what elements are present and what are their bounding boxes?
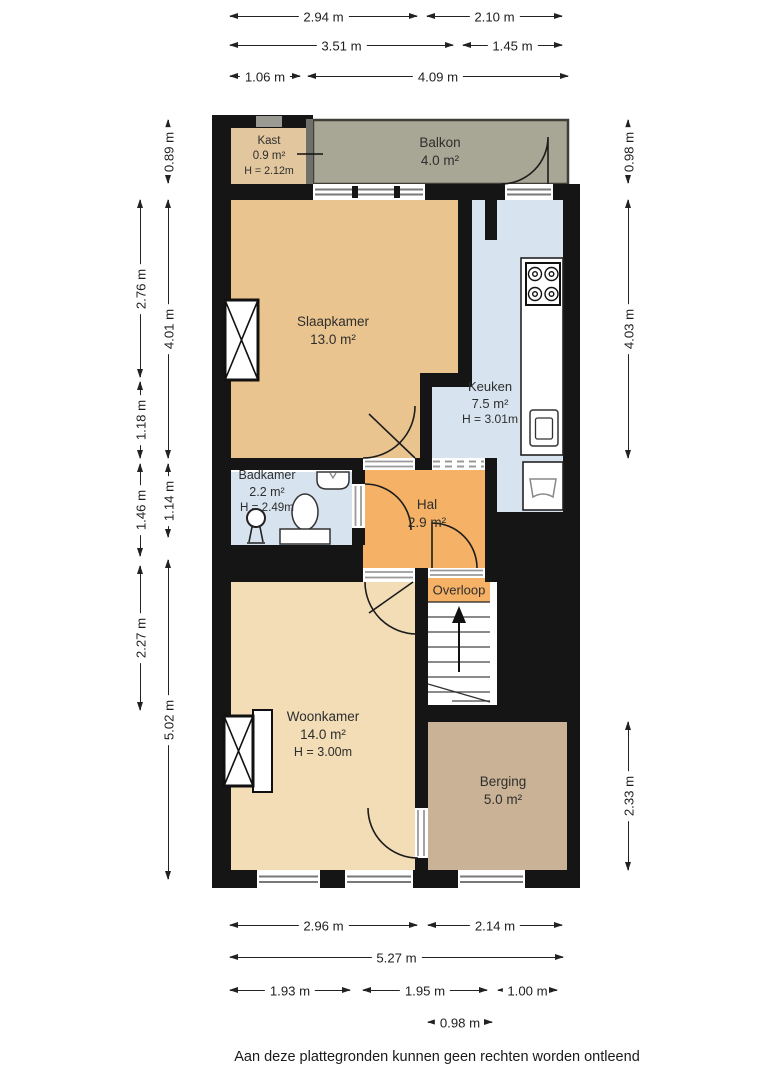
dim-label: 2.27 m [134, 613, 147, 663]
room-height: H = 2.12m [244, 164, 294, 178]
dim-top-1: 2.94 m [230, 16, 417, 17]
room-name: Keuken [462, 378, 518, 395]
keuken-hal-dashed-opening [432, 458, 485, 470]
appliance-icon [523, 462, 563, 510]
room-name: Badkamer [239, 467, 296, 484]
room-label-keuken: Keuken 7.5 m² H = 3.01m [462, 378, 518, 428]
dim-bottom-3: 5.27 m [230, 957, 563, 958]
woonkamer-door-opening [363, 568, 415, 582]
room-height: H = 3.01m [462, 412, 518, 428]
room-label-balkon: Balkon 4.0 m² [419, 134, 460, 170]
dim-right-1: 0.98 m [628, 120, 629, 183]
room-area: 13.0 m² [297, 331, 369, 349]
dim-left-8: 5.02 m [168, 560, 169, 879]
dim-label: 2.14 m [470, 919, 520, 932]
room-name: Balkon [419, 134, 460, 152]
disclaimer-text: Aan deze plattegronden kunnen geen recht… [234, 1049, 640, 1065]
dim-label: 2.94 m [298, 10, 348, 23]
dim-label: 0.89 m [162, 126, 175, 176]
dim-label: 1.93 m [265, 984, 315, 997]
room-area: 0.9 m² [244, 149, 294, 164]
dim-label: 2.96 m [298, 919, 348, 932]
room-label-overloop: Overloop [433, 581, 486, 598]
room-area: 7.5 m² [462, 395, 518, 412]
dim-label: 4.09 m [413, 70, 463, 83]
dim-left-6: 1.46 m [140, 464, 141, 556]
room-area: 4.0 m² [419, 152, 460, 170]
room-name: Woonkamer [287, 708, 360, 726]
room-name: Slaapkamer [297, 313, 369, 331]
room-area: 2.9 m² [408, 514, 446, 532]
dim-bottom-2: 2.14 m [428, 925, 562, 926]
dim-bottom-5: 1.95 m [363, 990, 487, 991]
kast-balkon-divider-wall [306, 119, 313, 184]
dim-top-2: 2.10 m [427, 16, 562, 17]
dim-top-3: 3.51 m [230, 45, 453, 46]
dim-label: 2.33 m [622, 771, 635, 821]
dim-label: 0.98 m [622, 126, 635, 176]
dim-left-5: 1.14 m [168, 464, 169, 537]
room-area: 2.2 m² [239, 483, 296, 500]
dim-label: 1.00 m [502, 984, 552, 997]
dim-top-4: 1.45 m [463, 45, 562, 46]
dim-label: 3.51 m [316, 39, 366, 52]
dim-right-3: 2.33 m [628, 722, 629, 870]
dim-left-2: 2.76 m [140, 200, 141, 377]
room-label-badkamer: Badkamer 2.2 m² H = 2.49m [239, 467, 296, 515]
dim-left-4: 1.18 m [140, 382, 141, 458]
dim-top-6: 4.09 m [308, 76, 568, 77]
dim-label: 1.46 m [134, 485, 147, 535]
balkon-door-threshold [505, 184, 553, 200]
toilet-icon [292, 494, 318, 530]
room-area: 14.0 m² [287, 726, 360, 744]
kitchen-fixtures [521, 258, 563, 510]
dim-right-2: 4.03 m [628, 200, 629, 458]
dim-label: 1.18 m [134, 395, 147, 445]
dim-label: 1.06 m [240, 70, 290, 83]
berging-window [458, 870, 525, 888]
room-label-kast: Kast 0.9 m² H = 2.12m [244, 134, 294, 178]
dim-label: 1.14 m [162, 475, 175, 525]
room-height: H = 3.00m [287, 744, 360, 761]
room-height: H = 2.49m [239, 500, 296, 515]
woonkamer-window-2 [345, 870, 413, 888]
dim-bottom-4: 1.93 m [230, 990, 350, 991]
washbasin-icon [317, 472, 349, 489]
wall-vent [256, 116, 282, 127]
room-label-hal: Hal 2.9 m² [408, 496, 446, 532]
room-label-berging: Berging 5.0 m² [480, 773, 527, 809]
slaapkamer-window [313, 184, 425, 200]
dim-label: 2.10 m [469, 10, 519, 23]
dim-label: 2.76 m [134, 263, 147, 313]
room-label-slaapkamer: Slaapkamer 13.0 m² [297, 313, 369, 349]
dim-label: 4.01 m [162, 304, 175, 354]
dim-label: 5.27 m [371, 951, 421, 964]
kitchen-sink-icon [530, 410, 558, 446]
floorplan-page: Kast 0.9 m² H = 2.12m Balkon 4.0 m² Slaa… [0, 0, 764, 1080]
dim-bottom-7: 0.98 m [428, 1022, 492, 1023]
dim-label: 0.98 m [435, 1016, 485, 1029]
room-label-woonkamer: Woonkamer 14.0 m² H = 3.00m [287, 708, 360, 760]
dim-left-3: 4.01 m [168, 200, 169, 458]
dim-label: 5.02 m [162, 694, 175, 744]
room-name: Hal [408, 496, 446, 514]
slaapkamer-door-opening [363, 458, 415, 470]
woonkamer-window-1 [257, 870, 320, 888]
room-name: Overloop [433, 581, 486, 598]
overloop-door-opening [428, 568, 485, 578]
dim-left-7: 2.27 m [140, 566, 141, 710]
badkamer-door-opening [352, 484, 365, 528]
dim-left-1: 0.89 m [168, 120, 169, 183]
floor-plan-drawing [0, 0, 764, 1080]
dim-label: 1.45 m [487, 39, 537, 52]
room-name: Kast [244, 134, 294, 149]
dim-top-5: 1.06 m [230, 76, 300, 77]
room-area: 5.0 m² [480, 791, 527, 809]
room-name: Berging [480, 773, 527, 791]
berging-door-opening [415, 808, 428, 858]
dim-bottom-1: 2.96 m [230, 925, 417, 926]
dim-label: 1.95 m [400, 984, 450, 997]
dim-label: 4.03 m [622, 304, 635, 354]
dim-bottom-6: 1.00 m [498, 990, 557, 991]
woonkamer-shaft [253, 710, 272, 792]
